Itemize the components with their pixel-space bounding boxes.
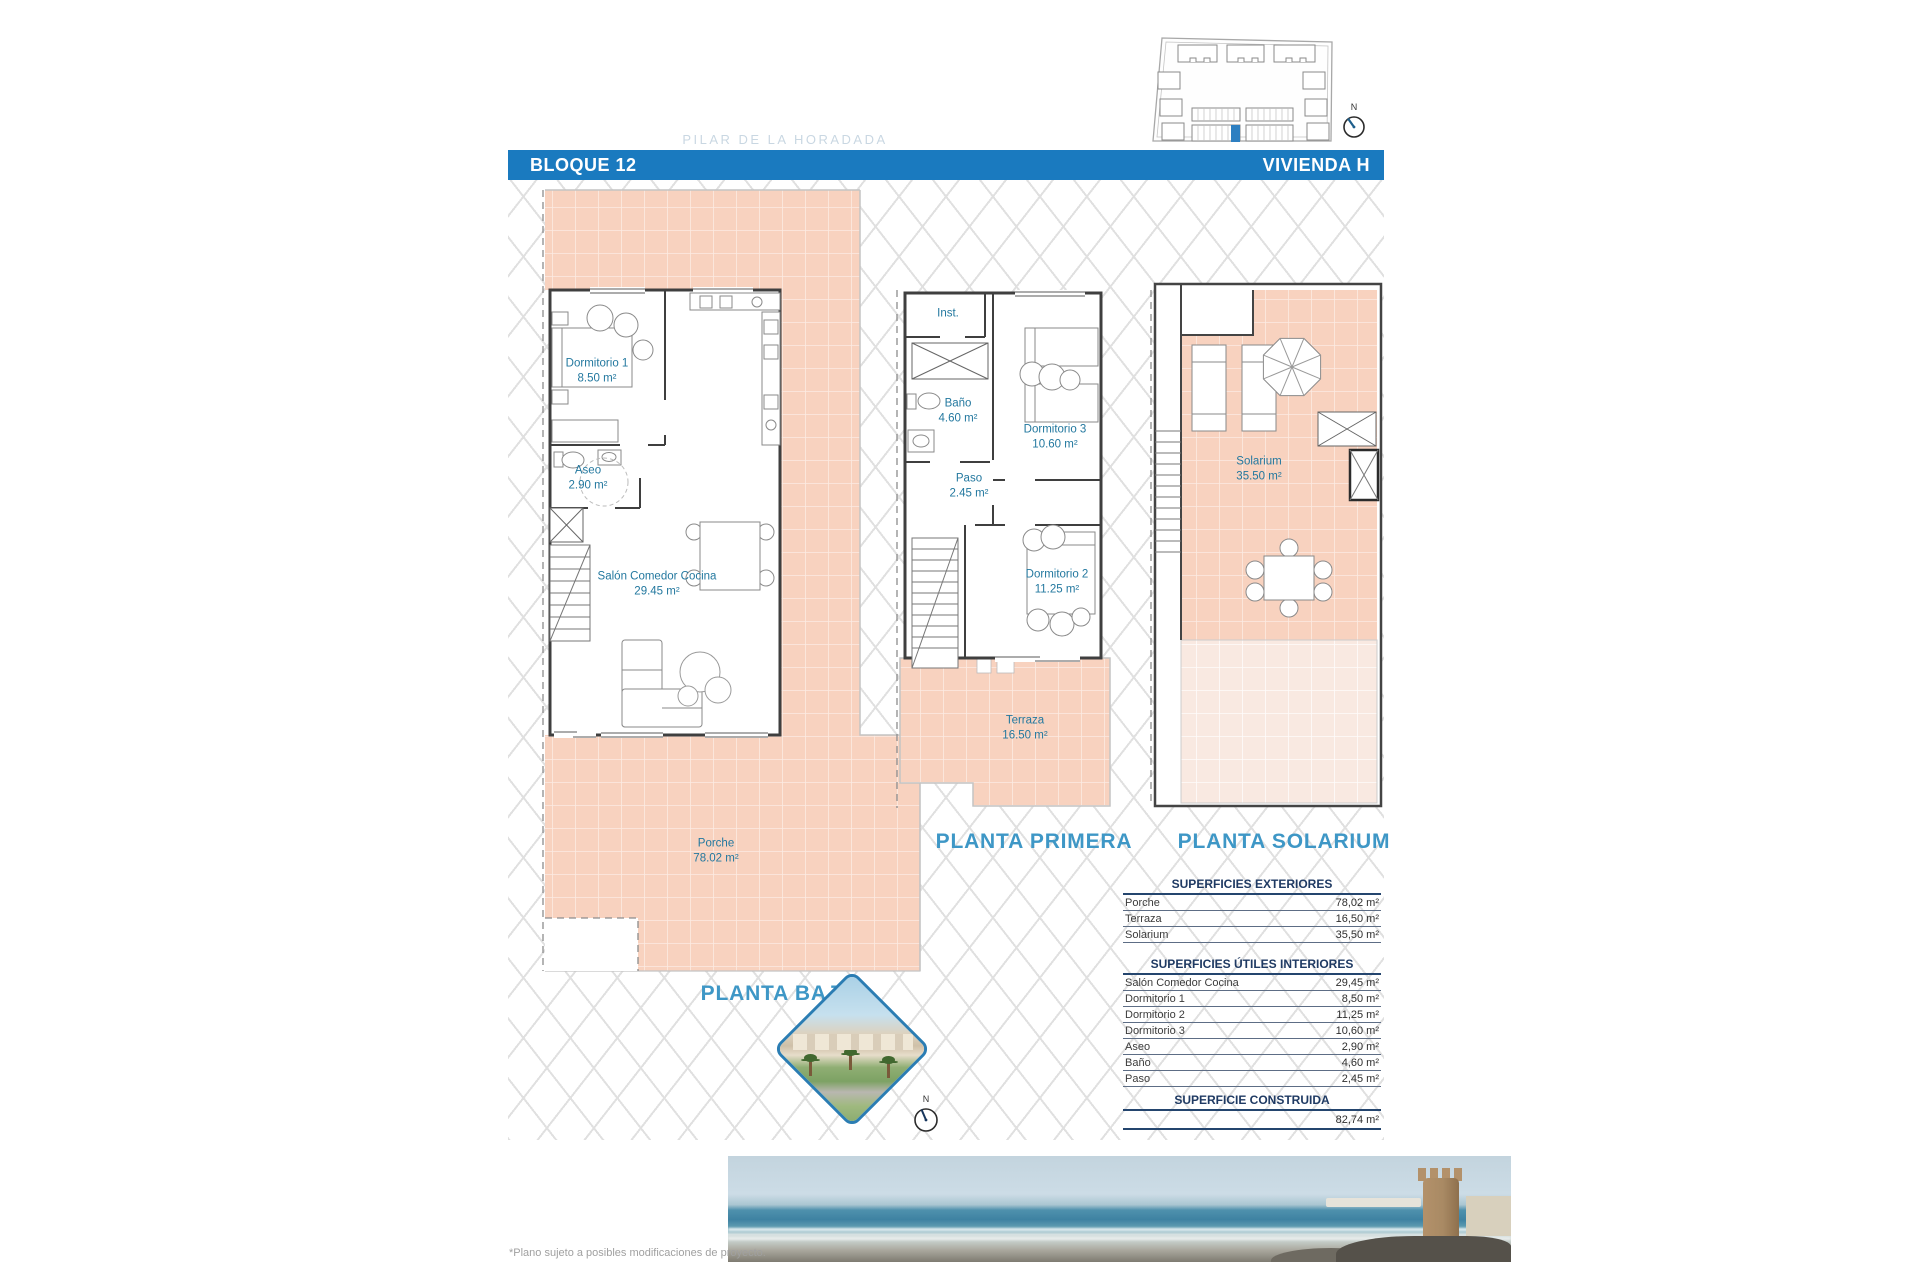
unit-label: VIVIENDA H (1263, 155, 1384, 176)
table-row: Salón Comedor Cocina29,45 m² (1123, 975, 1381, 991)
lower-roof-area (1181, 640, 1377, 803)
wave-foam (728, 1228, 1511, 1231)
palm-tree-icon (849, 1054, 852, 1070)
disclaimer-note: *Plano sujeto a posibles modificaciones … (509, 1247, 766, 1259)
parasol-icon (1263, 338, 1320, 395)
table-row: Dormitorio 211,25 m² (1123, 1007, 1381, 1023)
building-facade (793, 1034, 913, 1050)
shower-icon (912, 343, 988, 379)
compass-icon (912, 1105, 940, 1133)
planta-primera-title: PLANTA PRIMERA (936, 830, 1133, 854)
table-superficies-exteriores: SUPERFICIES EXTERIORES Porche78,02 m² Te… (1123, 877, 1381, 943)
floorplan-planta-primera (880, 280, 1130, 830)
palm-tree-icon (887, 1062, 890, 1078)
watermark-text: PILAR DE LA HORADADA (655, 132, 915, 147)
vent-shaft-icon (1318, 412, 1376, 446)
stairs-icon (912, 538, 958, 668)
highlighted-unit (1231, 125, 1240, 142)
room-label-terraza: Terraza16.50 m² (1002, 713, 1047, 742)
table-row: Dormitorio 18,50 m² (1123, 991, 1381, 1007)
coastal-photo (728, 1156, 1511, 1262)
table-row: Baño4,60 m² (1123, 1055, 1381, 1071)
room-label-aseo: Aseo2.90 m² (569, 463, 608, 492)
room-label-porche: Porche78.02 m² (693, 836, 738, 865)
compass-north-top: N (1338, 103, 1370, 144)
table-title: SUPERFICIE CONSTRUIDA (1123, 1093, 1381, 1111)
room-label-dormitorio3: Dormitorio 310.60 m² (1024, 422, 1087, 451)
room-label-salon: Salón Comedor Cocina29.45 m² (598, 569, 717, 598)
room-label-inst: Inst. (937, 307, 959, 322)
table-row: Aseo2,90 m² (1123, 1039, 1381, 1055)
table-row: Solarium35,50 m² (1123, 927, 1381, 943)
compass-north-bottom: N (910, 1095, 942, 1138)
dresser-icon (552, 420, 618, 442)
room-label-dormitorio2: Dormitorio 211.25 m² (1026, 567, 1089, 596)
shore-buildings (1466, 1196, 1511, 1236)
room-label-dormitorio1: Dormitorio 18.50 m² (566, 356, 629, 385)
header-bar: BLOQUE 12 VIVIENDA H (508, 150, 1384, 180)
table-row: 82,74 m² (1123, 1111, 1381, 1130)
table-title: SUPERFICIES ÚTILES INTERIORES (1123, 957, 1381, 975)
table-superficies-utiles-interiores: SUPERFICIES ÚTILES INTERIORES Salón Come… (1123, 957, 1381, 1087)
planta-solarium-title: PLANTA SOLARIUM (1178, 830, 1391, 854)
palm-tree-icon (809, 1060, 812, 1076)
compass-icon (1341, 113, 1367, 139)
table-superficie-construida: SUPERFICIE CONSTRUIDA 82,74 m² (1123, 1093, 1381, 1130)
table-row: Paso2,45 m² (1123, 1071, 1381, 1087)
table-row: Porche78,02 m² (1123, 895, 1381, 911)
block-label: BLOQUE 12 (508, 155, 637, 176)
stairs-icon (550, 545, 590, 641)
plan-sheet: PILAR DE LA HORADADA BLOQUE 12 VIVIENDA … (0, 0, 1920, 1280)
closet-icon (550, 508, 583, 542)
horizon-buildings (1326, 1198, 1421, 1207)
elevator-icon (1350, 450, 1378, 500)
table-row: Terraza16,50 m² (1123, 911, 1381, 927)
compass-n-label: N (1338, 103, 1370, 112)
room-label-bano: Baño4.60 m² (939, 396, 978, 425)
table-title: SUPERFICIES EXTERIORES (1123, 877, 1381, 895)
table-row: Dormitorio 310,60 m² (1123, 1023, 1381, 1039)
floorplan-planta-solarium (1140, 275, 1395, 815)
compass-n-label: N (910, 1095, 942, 1104)
room-label-paso: Paso2.45 m² (950, 471, 989, 500)
rocks (1336, 1236, 1511, 1262)
room-label-solarium: Solarium35.50 m² (1236, 454, 1281, 483)
